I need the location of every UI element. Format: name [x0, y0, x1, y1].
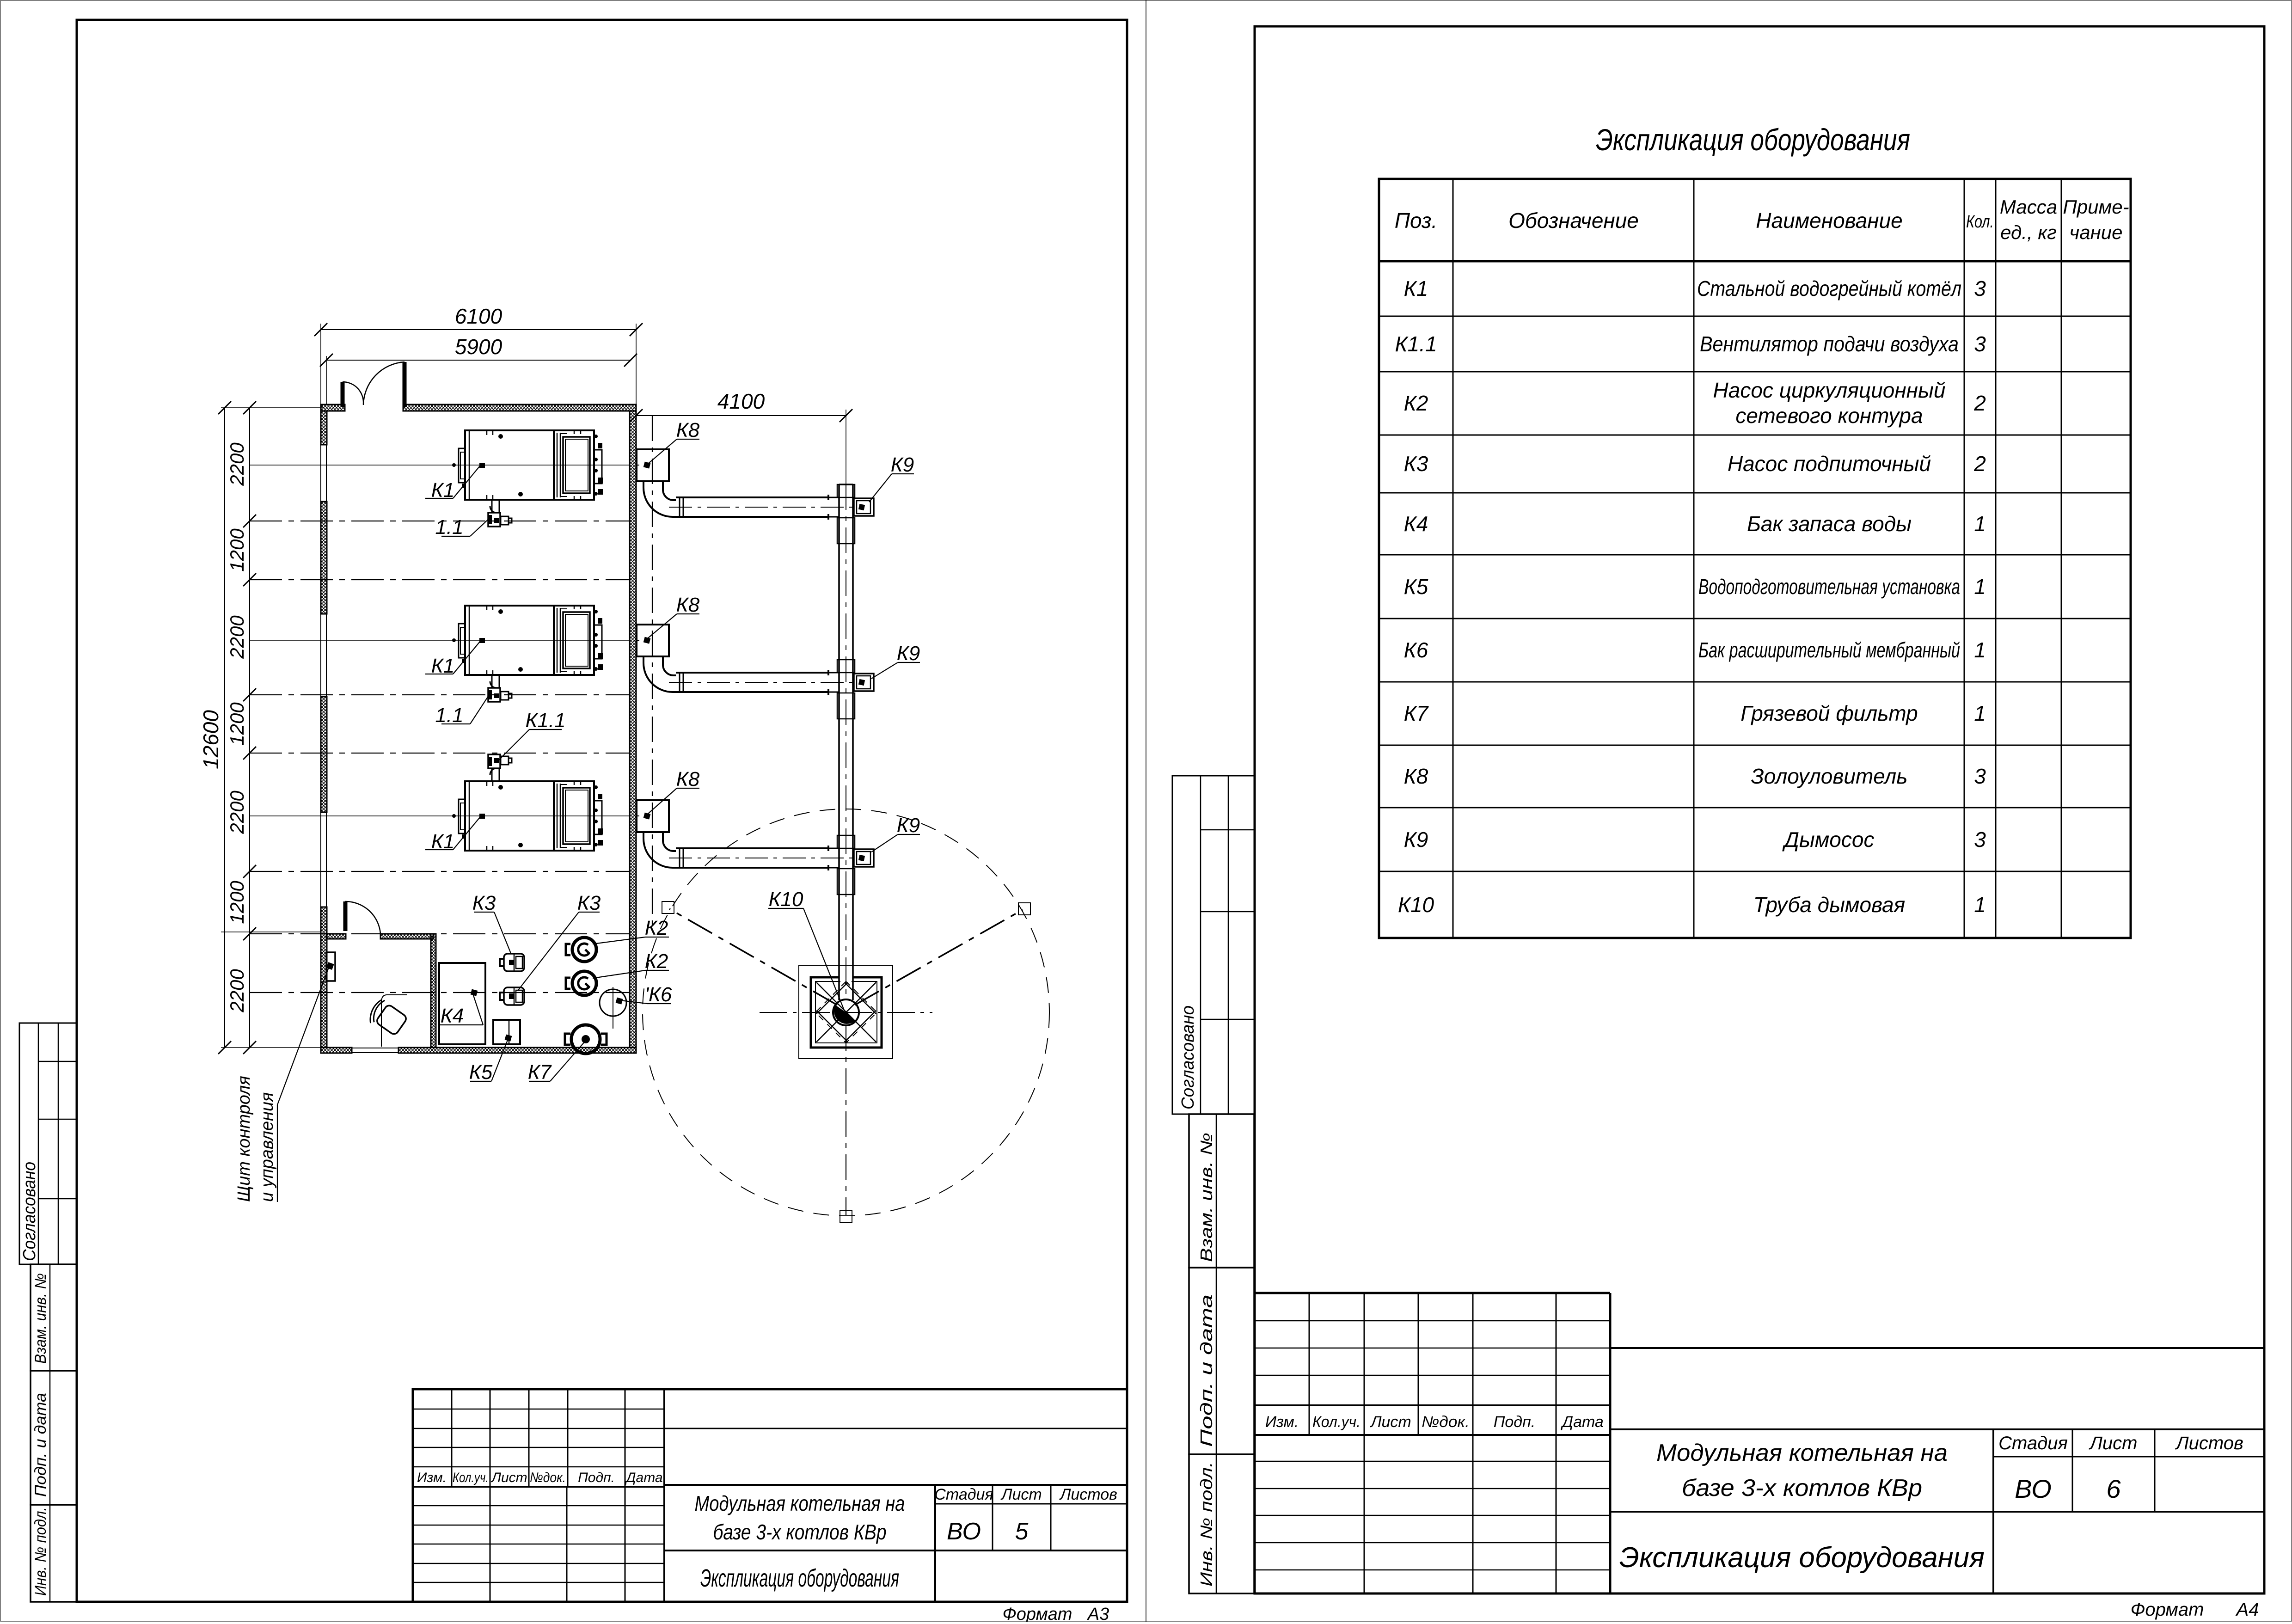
svg-text:Экспликация оборудования: Экспликация оборудования [700, 1564, 899, 1592]
svg-text:ВО: ВО [947, 1518, 981, 1545]
svg-text:1200: 1200 [226, 881, 248, 924]
svg-text:Золоуловитель: Золоуловитель [1751, 764, 1908, 788]
svg-text:Лист: Лист [2089, 1433, 2138, 1453]
svg-text:Подп.: Подп. [1494, 1413, 1536, 1431]
svg-text:Водоподготовительная установка: Водоподготовительная установка [1698, 575, 1960, 599]
svg-text:К9: К9 [897, 642, 920, 665]
svg-text:ВО: ВО [2015, 1474, 2052, 1503]
svg-text:'К6: 'К6 [645, 983, 672, 1006]
svg-text:Приме-: Приме- [2063, 196, 2129, 218]
svg-text:Подп. и дата: Подп. и дата [1197, 1294, 1216, 1447]
svg-text:Формат: Формат [2131, 1599, 2204, 1620]
svg-text:К1.1: К1.1 [525, 709, 565, 732]
svg-text:Щит контроля: Щит контроля [234, 1076, 254, 1202]
svg-text:2: 2 [1973, 391, 1986, 415]
svg-text:Лист: Лист [490, 1470, 527, 1485]
svg-text:1: 1 [1974, 575, 1986, 599]
svg-text:К1.1: К1.1 [1395, 332, 1437, 356]
svg-text:Насос циркуляционный: Насос циркуляционный [1713, 378, 1946, 402]
svg-text:Согласовано: Согласовано [1178, 1005, 1198, 1109]
svg-text:Подп. и дата: Подп. и дата [32, 1393, 49, 1497]
svg-text:5900: 5900 [455, 335, 503, 359]
svg-text:Инв. № подл.: Инв. № подл. [32, 1507, 49, 1596]
svg-text:3: 3 [1974, 276, 1986, 300]
svg-text:12600: 12600 [199, 710, 223, 769]
svg-text:2200: 2200 [226, 615, 248, 659]
svg-text:Дата: Дата [1560, 1413, 1604, 1431]
svg-text:Кол.: Кол. [1966, 212, 1994, 232]
svg-text:К6: К6 [1404, 638, 1428, 662]
svg-text:Экспликация оборудования: Экспликация оборудования [1619, 1542, 1985, 1574]
svg-text:Насос подпиточный: Насос подпиточный [1728, 452, 1931, 476]
svg-text:К3: К3 [1404, 452, 1428, 476]
svg-text:Взам. инв. №: Взам. инв. № [32, 1273, 49, 1364]
svg-text:К8: К8 [1404, 764, 1428, 788]
svg-text:Согласовано: Согласовано [20, 1162, 39, 1261]
svg-text:1: 1 [1974, 701, 1986, 725]
svg-text:К1: К1 [1404, 276, 1428, 300]
svg-text:Поз.: Поз. [1395, 208, 1438, 233]
svg-text:А3: А3 [1087, 1605, 1109, 1622]
svg-text:1200: 1200 [226, 528, 248, 572]
svg-text:2200: 2200 [226, 791, 248, 834]
svg-text:К9: К9 [891, 453, 914, 476]
svg-text:Подп.: Подп. [578, 1470, 615, 1485]
svg-text:чание: чание [2070, 221, 2123, 243]
svg-text:1: 1 [1974, 893, 1986, 917]
svg-text:Стадия: Стадия [934, 1486, 993, 1503]
svg-text:Изм.: Изм. [1265, 1413, 1299, 1431]
svg-text:Лист: Лист [1000, 1486, 1042, 1503]
svg-text:Труба дымовая: Труба дымовая [1753, 893, 1905, 917]
svg-text:Дата: Дата [625, 1470, 662, 1485]
svg-text:1200: 1200 [226, 702, 248, 746]
svg-text:Формат: Формат [1003, 1605, 1072, 1622]
svg-text:К3: К3 [472, 892, 496, 914]
svg-text:Бак расширительный мембранный: Бак расширительный мембранный [1698, 638, 1960, 662]
svg-text:1.1: 1.1 [435, 516, 463, 539]
svg-text:Кол.уч.: Кол.уч. [453, 1470, 489, 1485]
svg-text:Стальной водогрейный котёл: Стальной водогрейный котёл [1697, 276, 1961, 300]
svg-text:К4: К4 [1404, 512, 1428, 536]
svg-text:Наименование: Наименование [1756, 208, 1902, 233]
svg-text:Обозначение: Обозначение [1508, 208, 1639, 233]
svg-text:Модульная котельная на: Модульная котельная на [1656, 1440, 1948, 1466]
svg-text:Взам. инв. №: Взам. инв. № [1197, 1133, 1216, 1262]
svg-text:2200: 2200 [226, 442, 248, 486]
svg-text:1: 1 [1974, 638, 1986, 662]
svg-text:Изм.: Изм. [417, 1470, 447, 1485]
svg-text:Грязевой фильтр: Грязевой фильтр [1740, 701, 1918, 725]
svg-text:Стадия: Стадия [1998, 1433, 2068, 1453]
svg-text:ед., кг: ед., кг [2000, 221, 2057, 243]
svg-text:Вентилятор подачи воздуха: Вентилятор подачи воздуха [1700, 332, 1959, 356]
svg-text:К10: К10 [1398, 893, 1434, 917]
svg-text:Кол.уч.: Кол.уч. [1312, 1413, 1360, 1431]
svg-text:базе 3-х котлов КВр: базе 3-х котлов КВр [713, 1520, 887, 1544]
svg-text:Дымосос: Дымосос [1782, 827, 1875, 852]
svg-text:К2: К2 [645, 917, 668, 939]
svg-text:Инв. № подл.: Инв. № подл. [1197, 1462, 1216, 1587]
svg-text:К2: К2 [645, 950, 668, 973]
svg-text:2200: 2200 [226, 969, 248, 1013]
svg-text:№док.: №док. [1422, 1413, 1470, 1431]
svg-text:Модульная котельная на: Модульная котельная на [695, 1491, 905, 1515]
svg-text:5: 5 [1015, 1518, 1029, 1545]
svg-text:Листов: Листов [1059, 1486, 1117, 1503]
svg-text:Лист: Лист [1370, 1413, 1411, 1431]
svg-text:К2: К2 [1404, 391, 1428, 415]
svg-text:К5: К5 [1404, 575, 1428, 599]
svg-text:А4: А4 [2236, 1599, 2259, 1620]
svg-text:2: 2 [1973, 452, 1986, 476]
svg-text:и управления: и управления [257, 1092, 277, 1202]
svg-text:К7: К7 [1404, 701, 1429, 725]
svg-text:№док.: №док. [530, 1470, 566, 1485]
svg-text:3: 3 [1974, 332, 1986, 356]
svg-text:базе 3-х котлов КВр: базе 3-х котлов КВр [1682, 1475, 1922, 1501]
svg-text:Экспликация оборудования: Экспликация оборудования [1596, 123, 1910, 157]
svg-text:К8: К8 [676, 419, 700, 441]
svg-text:Масса: Масса [2000, 196, 2057, 218]
svg-text:сетевого контура: сетевого контура [1735, 404, 1923, 428]
svg-text:К8: К8 [676, 768, 700, 791]
svg-text:К7: К7 [528, 1061, 552, 1084]
svg-text:К4: К4 [441, 1005, 464, 1027]
svg-text:К5: К5 [469, 1061, 493, 1084]
svg-text:К10: К10 [769, 888, 803, 911]
svg-text:3: 3 [1974, 827, 1986, 852]
svg-text:К9: К9 [897, 814, 920, 837]
svg-text:Бак запаса воды: Бак запаса воды [1747, 512, 1912, 536]
svg-text:К9: К9 [1404, 827, 1428, 852]
svg-text:4100: 4100 [717, 389, 765, 413]
svg-text:3: 3 [1974, 764, 1986, 788]
svg-text:1: 1 [1974, 512, 1986, 536]
svg-text:6100: 6100 [455, 304, 503, 328]
svg-text:Листов: Листов [2175, 1433, 2243, 1453]
svg-text:1.1: 1.1 [435, 704, 463, 727]
svg-text:К8: К8 [676, 594, 700, 616]
svg-text:К3: К3 [577, 892, 601, 914]
svg-text:6: 6 [2106, 1474, 2121, 1503]
